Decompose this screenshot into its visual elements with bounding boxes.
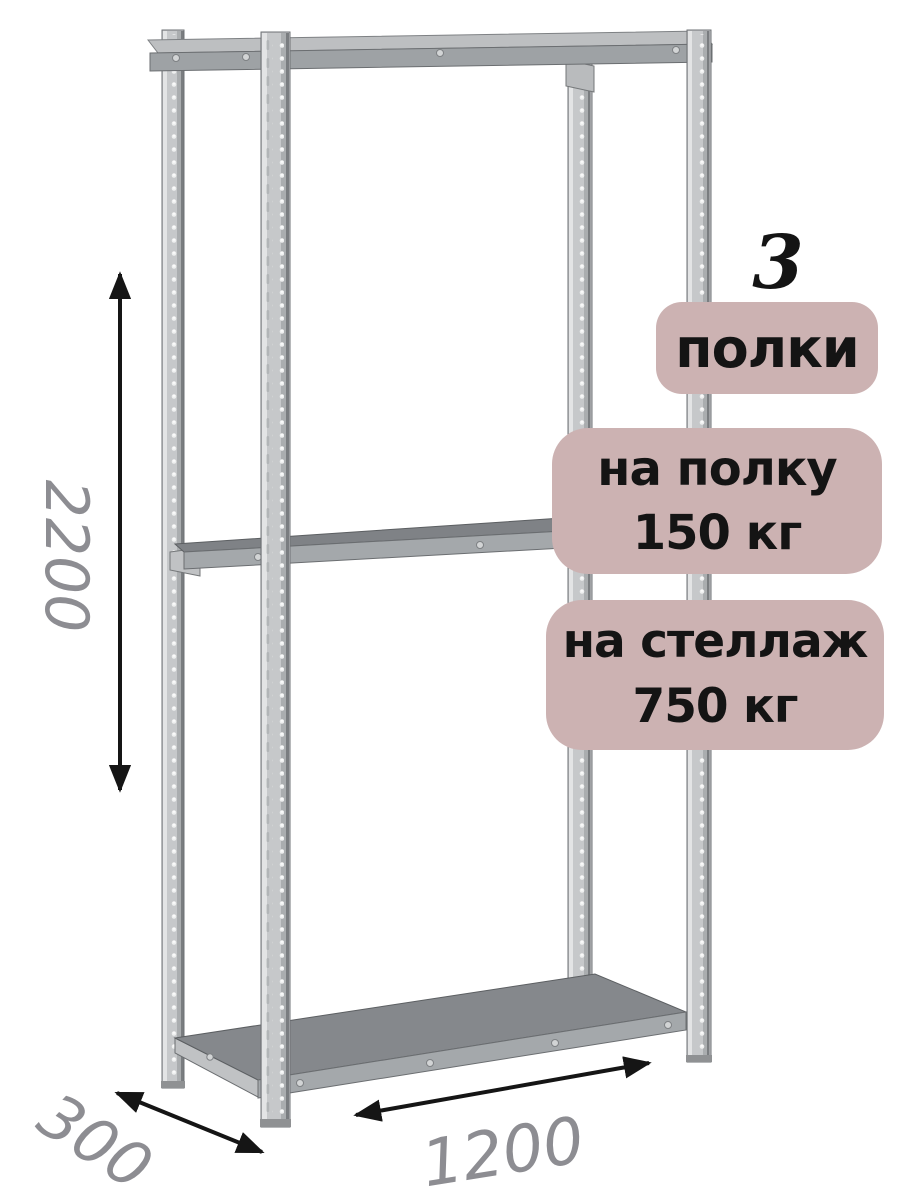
shelf-top [148, 31, 712, 71]
shelf-count: 3 [728, 218, 828, 308]
shelf-bracket [566, 60, 594, 92]
badge-load-per-shelf-line1: на полку [597, 437, 836, 501]
product-image: 2200 300 1200 3 полки на полку 150 кг на… [0, 0, 900, 1200]
badge-load-per-rack-line2: 750 кг [633, 675, 798, 740]
badge-shelves: полки [656, 302, 878, 394]
post-front-left [260, 32, 291, 1127]
height-dimension-label: 2200 [30, 436, 102, 676]
shelf-bottom [175, 974, 686, 1098]
badge-load-per-rack-line1: на стеллаж [563, 610, 868, 675]
badge-load-per-shelf: на полку 150 кг [552, 428, 882, 574]
badge-load-per-rack: на стеллаж 750 кг [546, 600, 884, 750]
badge-load-per-shelf-line2: 150 кг [633, 501, 802, 565]
badge-shelves-label: полки [675, 317, 858, 380]
